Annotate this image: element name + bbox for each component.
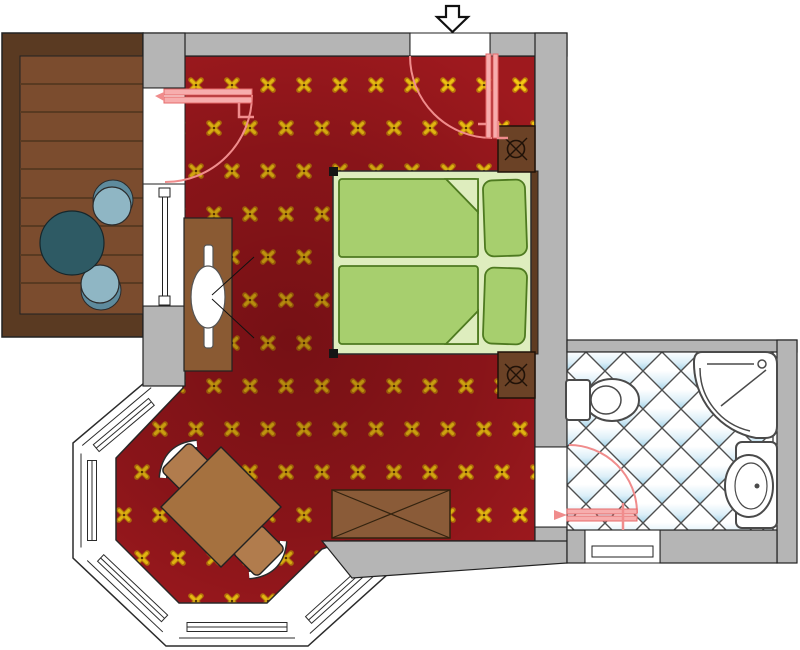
bed-corner-post-bottom xyxy=(329,349,338,358)
bathroom-window xyxy=(585,530,660,563)
wall-bathroom-top xyxy=(567,340,797,352)
nightstand-top xyxy=(498,126,535,172)
deck-round-table xyxy=(40,211,104,275)
pillow-bottom xyxy=(483,267,528,344)
entry-opening xyxy=(410,33,490,56)
stool xyxy=(191,266,225,328)
double-bed xyxy=(329,167,531,358)
floor-plan xyxy=(0,0,800,650)
entrance-arrow-icon xyxy=(437,6,468,32)
bathroom xyxy=(566,352,777,530)
balcony-deck xyxy=(2,33,143,337)
wall-corner-block xyxy=(143,33,185,88)
toilet xyxy=(566,379,639,421)
pillow-top xyxy=(483,179,528,256)
wall-bathroom-bottom-left xyxy=(567,530,585,563)
basin-drain-icon xyxy=(755,484,760,489)
bed-corner-post-top xyxy=(329,167,338,176)
nightstand-bottom xyxy=(498,352,535,398)
luggage-bench xyxy=(332,490,450,538)
west-window xyxy=(143,184,185,306)
wall-bottom xyxy=(322,541,567,578)
wall-east xyxy=(535,33,567,447)
shower-head-icon xyxy=(758,360,766,368)
wall-west xyxy=(143,306,185,386)
deck-chair-top xyxy=(93,180,133,225)
floor-plan-canvas xyxy=(0,0,800,650)
wall-bathroom-bottom-right xyxy=(660,530,777,563)
wall-bathroom-right xyxy=(777,340,797,563)
